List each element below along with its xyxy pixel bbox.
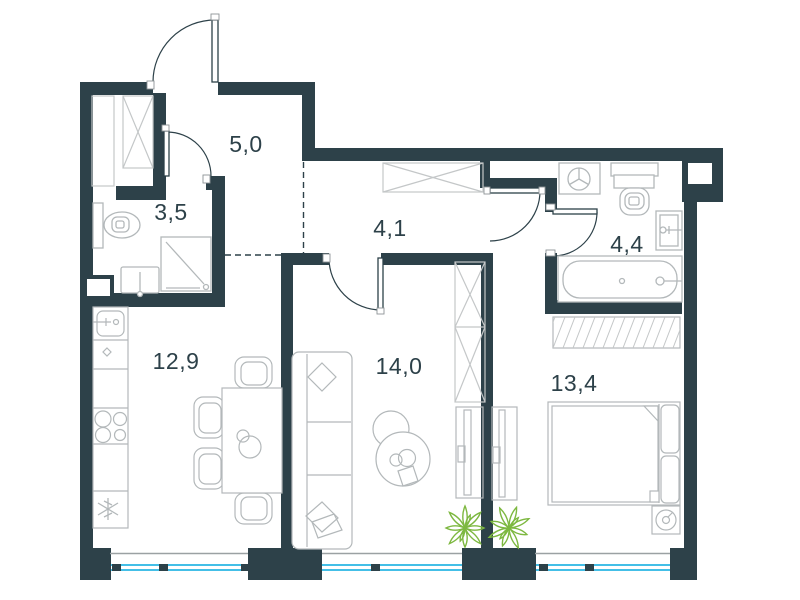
blanket-corner [650, 491, 659, 502]
top-wall-mid [218, 82, 315, 95]
bathtub-icon [558, 256, 682, 302]
ensuite-door-leaf [553, 209, 597, 214]
sofa-icon [292, 352, 352, 549]
pillow-icon [661, 456, 679, 503]
pillow-icon [661, 405, 679, 453]
room-label-ensuite: 4,4 [610, 231, 643, 257]
dining-table-icon [222, 388, 282, 493]
room-label-kitchen: 12,9 [153, 348, 200, 374]
double-bed-icon [548, 402, 680, 505]
bottom-pier-1 [80, 548, 111, 580]
bathroom-shaft-box [85, 277, 112, 298]
sink-icon [656, 211, 682, 250]
washing-machine-icon [559, 163, 600, 194]
entry-door-leaf [212, 20, 218, 82]
chair-icon [194, 397, 224, 438]
bathroom-door-leaf [164, 131, 169, 176]
living-room-door-leaf [378, 258, 383, 310]
bottom-pier-2 [248, 548, 322, 580]
shower-icon [161, 237, 211, 291]
floor-plan: 5,0 3,5 4,1 4,4 12,9 14,0 13,4 [0, 0, 800, 600]
chair-icon [235, 357, 272, 388]
room-label-living-room: 14,0 [376, 353, 423, 379]
top-wall-right [302, 148, 723, 161]
corridor-bottom-wall-b [381, 253, 486, 265]
floor-plan-svg: 5,0 3,5 4,1 4,4 12,9 14,0 13,4 [0, 0, 800, 600]
living-bedroom-divider-wall [481, 253, 493, 548]
bottom-pier-4 [670, 548, 697, 580]
vent-shaft-notch [688, 163, 712, 184]
chair-icon [235, 493, 272, 524]
chair-icon [194, 448, 224, 489]
bedroom-door-leaf [490, 188, 540, 193]
room-label-entry-hall: 5,0 [229, 131, 262, 157]
bathroom-top-wall [116, 186, 166, 200]
room-label-bathroom: 3,5 [154, 199, 187, 225]
top-wall-left [80, 82, 153, 95]
living-west-wall [281, 253, 293, 548]
sink-icon [121, 267, 159, 297]
bathroom-right-wall [212, 176, 225, 307]
bedside-table-icon [652, 506, 680, 534]
room-label-bedroom: 13,4 [551, 370, 598, 396]
vanity-shelf [611, 163, 658, 176]
bottom-pier-3 [462, 548, 536, 580]
right-exterior-wall [684, 161, 697, 580]
room-label-corridor: 4,1 [373, 215, 406, 241]
left-exterior-wall [80, 82, 93, 580]
nook-step-wall [480, 161, 490, 188]
